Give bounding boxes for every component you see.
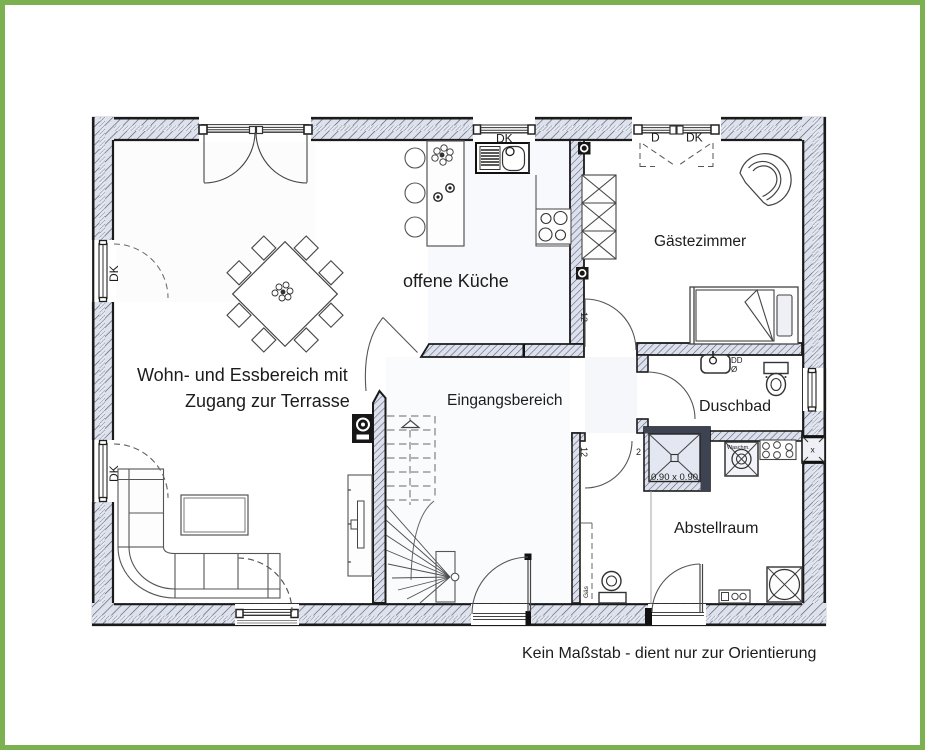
svg-text:0.90 x 0.90: 0.90 x 0.90 <box>651 472 698 483</box>
svg-text:Abstellraum: Abstellraum <box>674 520 758 537</box>
svg-text:12: 12 <box>579 447 589 457</box>
svg-text:Wohn- und Essbereich mit: Wohn- und Essbereich mit <box>137 365 348 385</box>
svg-text:Eingangsbereich: Eingangsbereich <box>447 392 562 409</box>
svg-text:offene Küche: offene Küche <box>403 271 509 291</box>
svg-text:Waschm.: Waschm. <box>727 445 750 451</box>
svg-text:Duschbad: Duschbad <box>699 398 771 415</box>
svg-text:DD: DD <box>731 356 743 365</box>
svg-text:Gäs: Gäs <box>583 585 590 598</box>
svg-text:12: 12 <box>579 312 589 322</box>
svg-text:2: 2 <box>636 447 641 457</box>
svg-text:Kein Maßstab - dient nur zur O: Kein Maßstab - dient nur zur Orientierun… <box>522 645 816 662</box>
svg-text:Gästezimmer: Gästezimmer <box>654 233 746 250</box>
svg-text:DK: DK <box>107 265 121 282</box>
svg-text:Zugang zur Terrasse: Zugang zur Terrasse <box>185 391 350 411</box>
svg-text:DK: DK <box>686 131 703 145</box>
svg-text:D: D <box>651 131 660 145</box>
svg-text:Ø: Ø <box>731 365 737 374</box>
